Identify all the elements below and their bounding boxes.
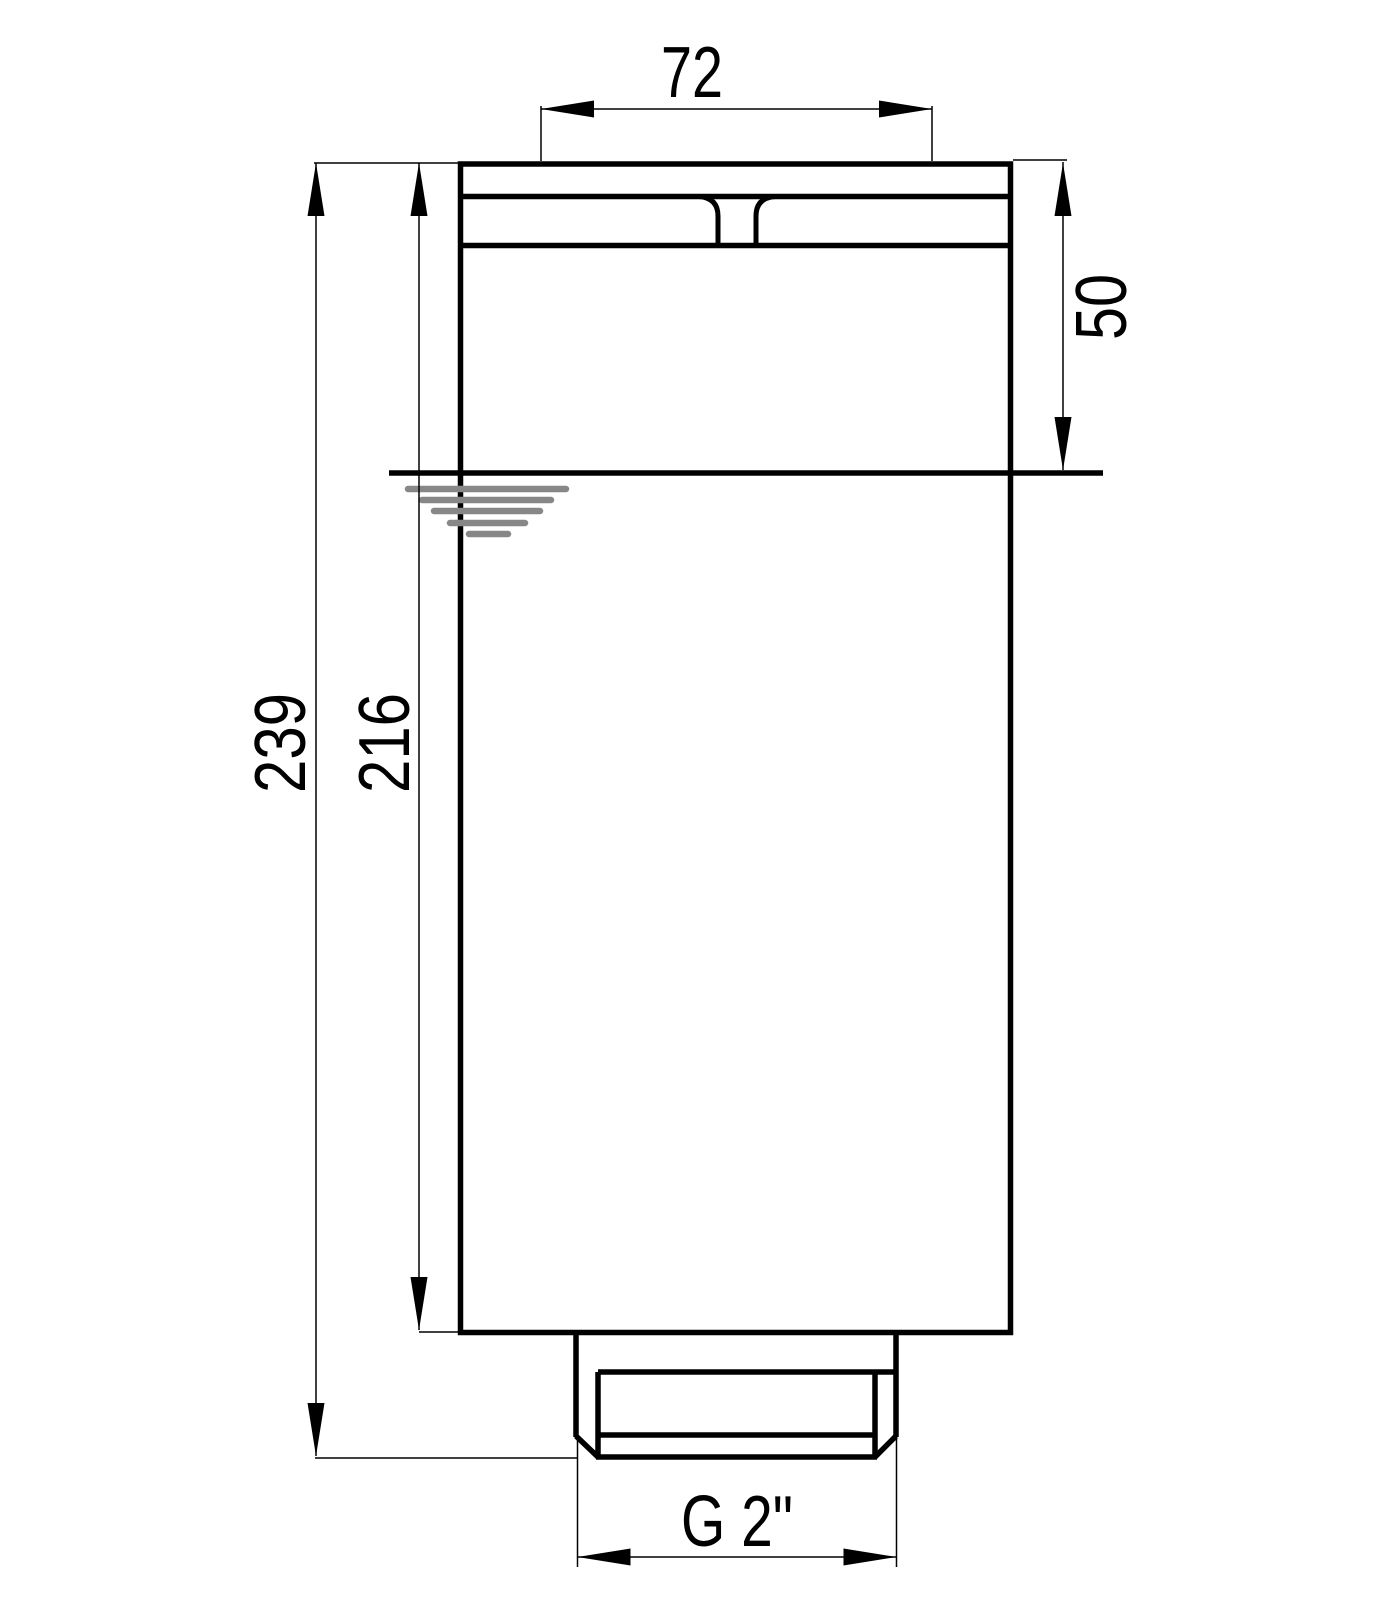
dim-label-overall-height: 239 [241, 693, 321, 793]
dim-arrow-left [541, 101, 594, 118]
dim-label-thread-size: G 2" [681, 1482, 793, 1562]
dim-body-height: 216 [345, 163, 461, 1332]
dim-arrow-up [1055, 163, 1072, 216]
thread-chamfer-left [576, 1436, 598, 1457]
dim-label-head-height: 50 [1062, 274, 1142, 340]
dim-arrow-right [844, 1549, 897, 1566]
dim-arrow-left [578, 1549, 631, 1566]
thread-profile [576, 1333, 896, 1457]
dim-arrow-up [411, 163, 428, 216]
dim-arrow-down [411, 1277, 428, 1330]
technical-drawing-canvas: 72 50 239 216 G 2" [0, 0, 1390, 1600]
dim-arrow-down [308, 1403, 325, 1456]
part-view [389, 164, 1103, 1457]
body-outline [461, 164, 1011, 1333]
dim-arrow-right [879, 101, 932, 118]
dim-arrow-up [308, 163, 325, 216]
dim-arrow-down [1055, 417, 1072, 470]
dim-label-top-width: 72 [661, 33, 723, 113]
dim-head-height: 50 [1013, 160, 1142, 470]
dim-label-body-height: 216 [345, 693, 425, 793]
dim-top-width: 72 [541, 33, 932, 161]
thread-chamfer-right [875, 1436, 896, 1457]
threaded-vessel-drawing: 72 50 239 216 G 2" [0, 0, 1390, 1600]
